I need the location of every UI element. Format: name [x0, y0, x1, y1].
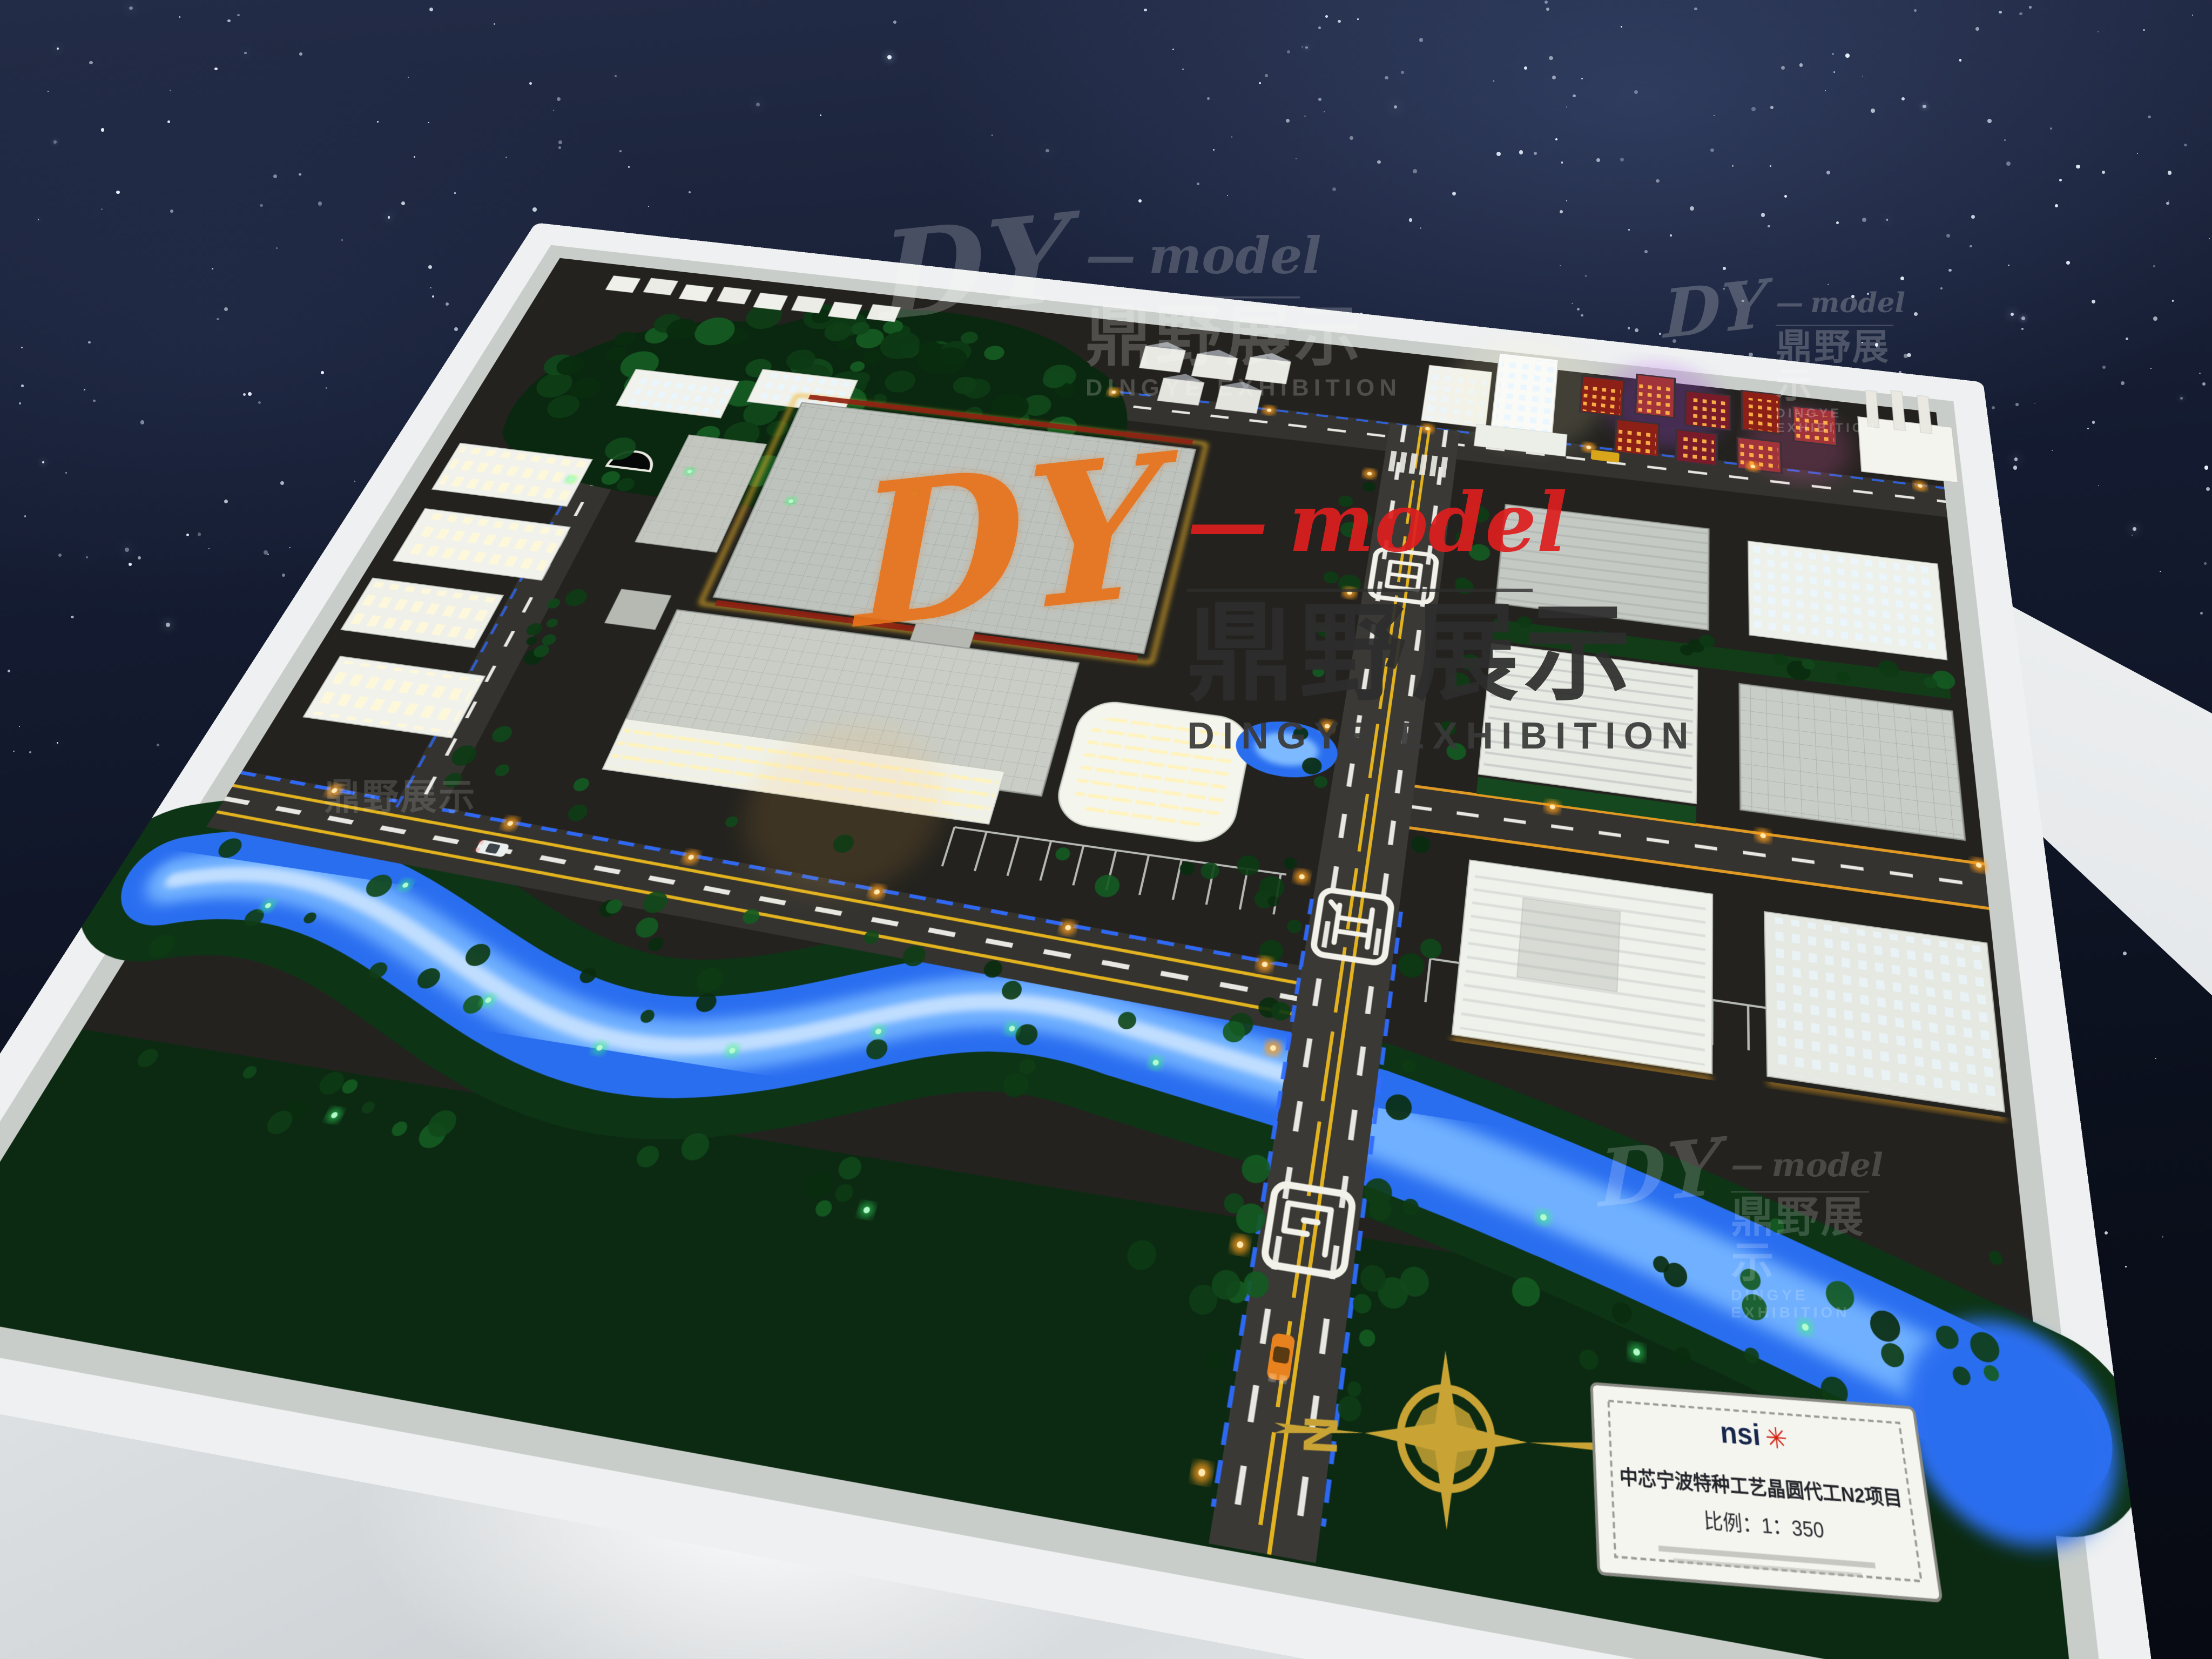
nameplate-logo: nsi	[1719, 1415, 1762, 1452]
model-board: N nsi ✳ 中芯宁波特种工艺晶圆代工N2项目 比例：1：350	[0, 222, 2173, 1659]
photo-of-scale-model: N nsi ✳ 中芯宁波特种工艺晶圆代工N2项目 比例：1：350 DY	[0, 0, 2212, 1659]
nameplate: nsi ✳ 中芯宁波特种工艺晶圆代工N2项目 比例：1：350	[1591, 1384, 1941, 1601]
nameplate-logo-mark: ✳	[1764, 1420, 1789, 1456]
compass-north-label: N	[1293, 1414, 1348, 1456]
model-board-perspective: N nsi ✳ 中芯宁波特种工艺晶圆代工N2项目 比例：1：350	[0, 0, 2212, 1659]
